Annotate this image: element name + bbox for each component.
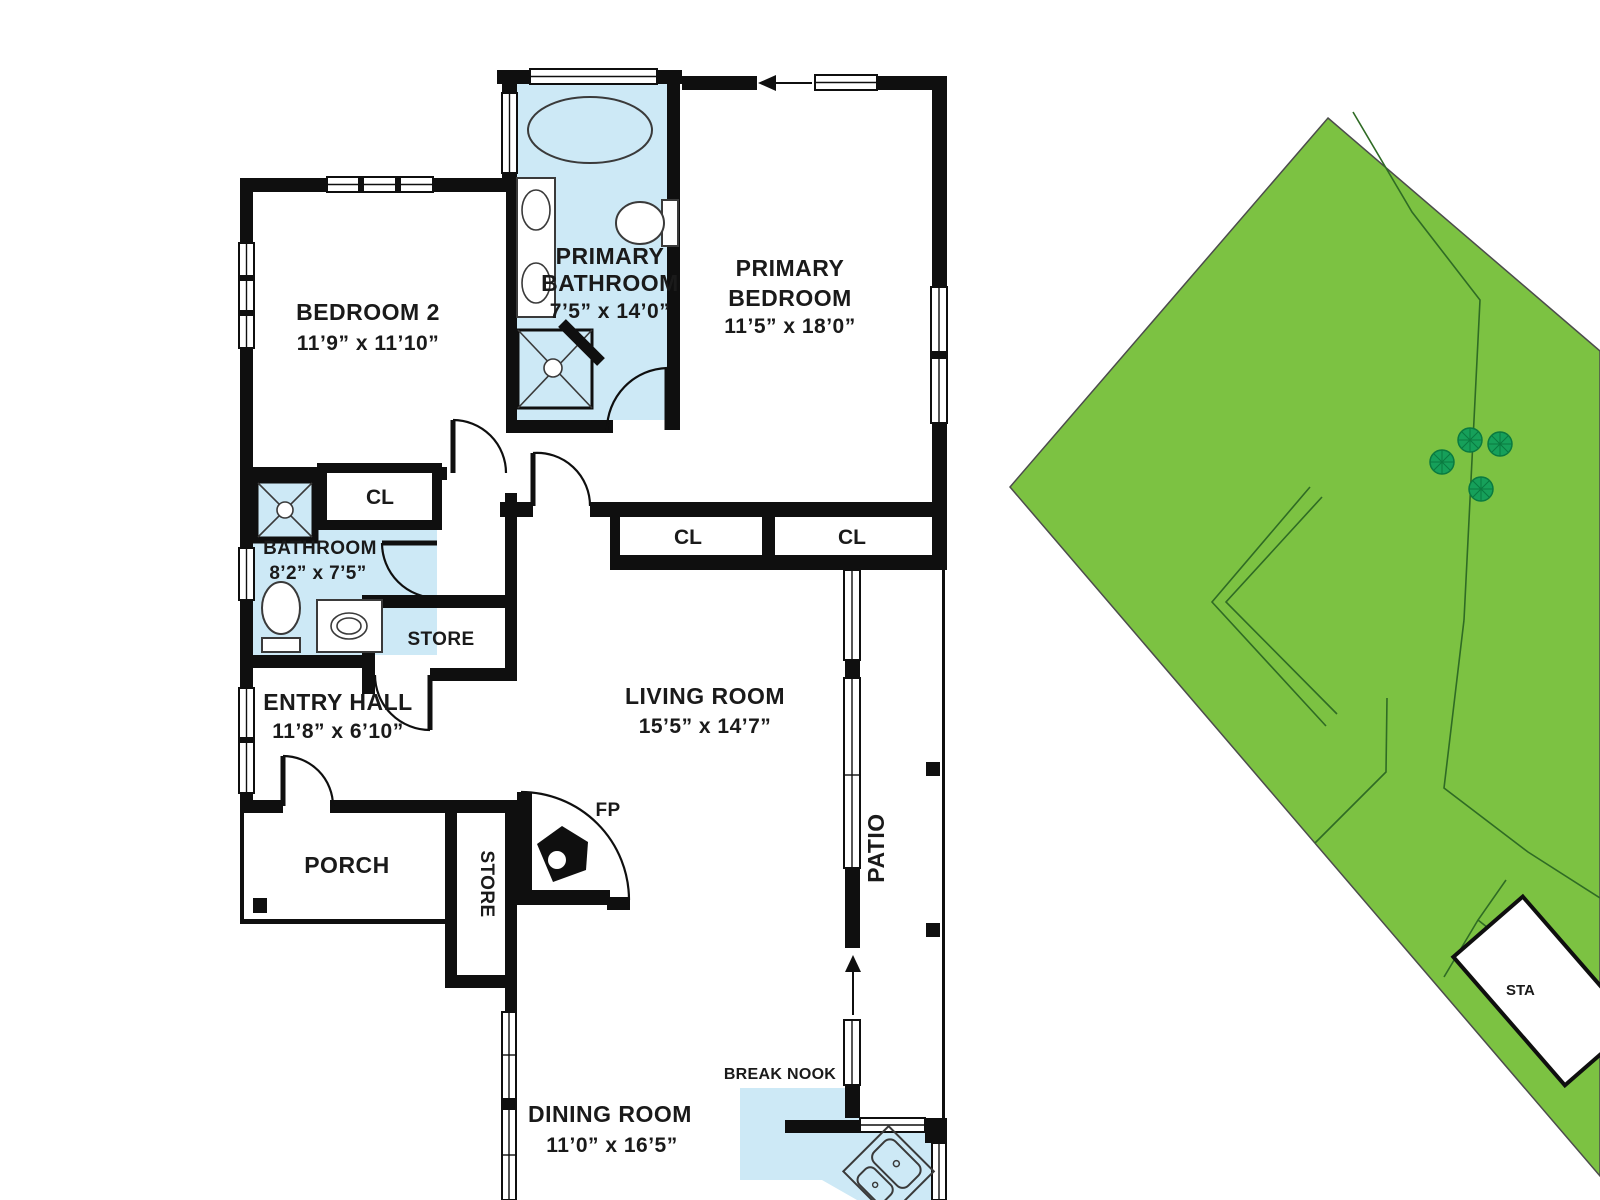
- vanity-icon: [517, 178, 555, 317]
- label-closet-primary-2: CL: [838, 526, 866, 549]
- label-primary-bedroom-dims: 11’5” x 18’0”: [724, 315, 855, 338]
- tree-icon: [1488, 432, 1512, 456]
- tree-icon: [1430, 450, 1454, 474]
- label-living-room: LIVING ROOM: [625, 683, 785, 709]
- label-closet-primary-1: CL: [674, 526, 702, 549]
- stairs-label: STA: [1506, 982, 1535, 999]
- floor-plan-canvas: STA: [0, 0, 1600, 1200]
- break-nook-floor: [740, 1088, 933, 1200]
- label-primary-bedroom-2: BEDROOM: [728, 285, 852, 311]
- label-bathroom: BATHROOM: [263, 538, 377, 559]
- label-bedroom2-dims: 11’9” x 11’10”: [297, 332, 439, 355]
- vanity-icon: [317, 600, 382, 652]
- label-entry-hall: ENTRY HALL: [263, 689, 412, 715]
- label-dining-room: DINING ROOM: [528, 1101, 692, 1127]
- floor-plan-drawing: STA: [0, 0, 1600, 1200]
- shower-icon: [255, 480, 315, 540]
- label-primary-bathroom: PRIMARY: [556, 243, 665, 269]
- label-closet-bedroom2: CL: [366, 486, 394, 509]
- label-primary-bathroom-2: BATHROOM: [541, 270, 679, 296]
- arrow-left-icon: [758, 75, 812, 91]
- label-porch: PORCH: [304, 852, 390, 878]
- label-fireplace: FP: [595, 800, 620, 821]
- arrow-up-icon: [845, 955, 861, 1015]
- label-dining-room-dims: 11’0” x 16’5”: [546, 1134, 677, 1157]
- tree-icon: [1458, 428, 1482, 452]
- lawn-area: STA: [1010, 112, 1600, 1176]
- label-store-hall: STORE: [407, 629, 474, 650]
- label-bathroom-dims: 8’2” x 7’5”: [269, 563, 366, 584]
- tree-icon: [1469, 477, 1493, 501]
- toilet-icon: [616, 200, 678, 246]
- label-break-nook: BREAK NOOK: [724, 1066, 836, 1083]
- label-entry-hall-dims: 11’8” x 6’10”: [272, 720, 403, 743]
- label-living-room-dims: 15’5” x 14’7”: [639, 715, 772, 738]
- label-primary-bedroom: PRIMARY: [736, 255, 845, 281]
- label-primary-bathroom-dims: 7’5” x 14’0”: [550, 300, 670, 323]
- toilet-icon: [262, 582, 300, 652]
- label-store-porch: STORE: [476, 850, 497, 917]
- label-patio: PATIO: [863, 813, 889, 882]
- label-bedroom2: BEDROOM 2: [296, 299, 440, 325]
